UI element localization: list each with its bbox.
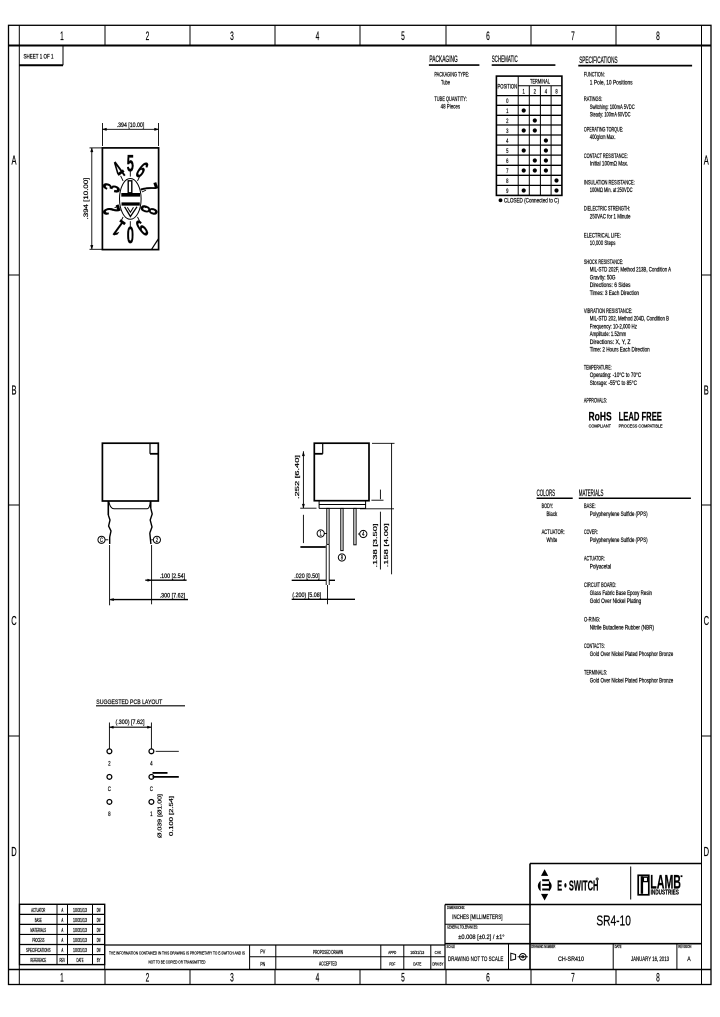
svg-text:1: 1 [60, 30, 64, 44]
svg-text:(.300) [7.62]: (.300) [7.62] [116, 720, 145, 726]
svg-text:2: 2 [108, 761, 110, 768]
svg-text:OPERATING TORQUE:: OPERATING TORQUE: [584, 127, 623, 134]
svg-text:PROCESS: PROCESS [32, 938, 44, 944]
svg-text:48 Pieces: 48 Pieces [441, 103, 461, 110]
svg-text:PACKAGING: PACKAGING [429, 54, 457, 64]
svg-text:BASE: BASE [35, 918, 42, 924]
svg-text:PDF: PDF [389, 962, 395, 967]
svg-text:TERMINALS:: TERMINALS: [584, 670, 607, 677]
svg-text:3: 3 [230, 30, 234, 44]
svg-text:FUNCTION:: FUNCTION: [584, 72, 605, 79]
svg-text:C: C [100, 537, 103, 544]
svg-text:1 Pole, 10 Positions: 1 Pole, 10 Positions [590, 79, 633, 86]
svg-text:8: 8 [555, 89, 557, 96]
svg-text:Time: 2 Hours Each Direction: Time: 2 Hours Each Direction [590, 347, 650, 354]
svg-text:INSULATION RESISTANCE:: INSULATION RESISTANCE: [584, 179, 635, 186]
svg-text:CH-SR410: CH-SR410 [558, 956, 584, 963]
svg-text:400g/cm Max.: 400g/cm Max. [590, 134, 616, 141]
svg-text:Glass Fabric Base Epoxy Resin: Glass Fabric Base Epoxy Resin [590, 590, 652, 597]
svg-text:MIL-STD 202F, Method 213B, Con: MIL-STD 202F, Method 213B, Condition A [590, 267, 672, 274]
svg-text:10/31/13: 10/31/13 [410, 950, 424, 955]
svg-text:2: 2 [156, 537, 158, 544]
svg-text:DATE: DATE [77, 958, 84, 964]
svg-text:7: 7 [571, 30, 575, 44]
svg-text:SHOCK RESISTANCE:: SHOCK RESISTANCE: [584, 259, 623, 266]
svg-text:B: B [704, 385, 709, 398]
svg-text:SPECIFICATIONS: SPECIFICATIONS [579, 55, 617, 65]
svg-text:4: 4 [545, 89, 547, 96]
svg-text:CIRCUIT BOARD:: CIRCUIT BOARD: [584, 582, 616, 589]
svg-text:4: 4 [506, 138, 508, 145]
svg-text:THE INFORMATION CONTAINED IN T: THE INFORMATION CONTAINED IN THIS DRAWIN… [109, 951, 245, 957]
svg-text:ACTUATOR: ACTUATOR [31, 908, 45, 914]
svg-text:COMPLIANT: COMPLIANT [589, 424, 612, 429]
svg-text:10,000 Steps: 10,000 Steps [590, 240, 616, 247]
svg-text:Steady: 100mA 60VDC: Steady: 100mA 60VDC [590, 112, 631, 119]
svg-text:9: 9 [506, 188, 508, 195]
svg-text:SHEET 1 OF 1: SHEET 1 OF 1 [24, 55, 54, 61]
svg-text:0.100 [2.54]: 0.100 [2.54] [169, 795, 175, 836]
svg-text:DW: DW [97, 928, 101, 934]
svg-text:CLOSED (Connected to C): CLOSED (Connected to C) [504, 199, 559, 205]
svg-text:REVISION: REVISION [678, 944, 691, 949]
svg-text:Gravity: 50G: Gravity: 50G [590, 274, 616, 281]
svg-text:2: 2 [146, 30, 150, 44]
svg-text:ACTUATOR:: ACTUATOR: [542, 529, 565, 536]
svg-text:APPROVALS:: APPROVALS: [584, 398, 607, 405]
svg-text:8: 8 [341, 555, 343, 562]
svg-text:D: D [704, 846, 709, 859]
svg-text:CHK: CHK [435, 950, 442, 955]
svg-text:PROCESS COMPATIBLE: PROCESS COMPATIBLE [619, 424, 663, 429]
svg-text:ACTUATOR:: ACTUATOR: [584, 556, 605, 563]
svg-text:White: White [547, 537, 558, 544]
svg-text:.394 [10.00]: .394 [10.00] [117, 123, 145, 129]
svg-text:3: 3 [506, 128, 508, 135]
svg-text:A: A [61, 928, 63, 934]
svg-text:4: 4 [316, 972, 320, 986]
svg-text:NOT TO BE COPIED OR TRANSMITTE: NOT TO BE COPIED OR TRANSMITTED [149, 960, 206, 966]
svg-text:INDUSTRIES: INDUSTRIES [651, 890, 679, 897]
svg-text:COLORS: COLORS [537, 488, 556, 498]
svg-text:.394 [10.00]: .394 [10.00] [84, 177, 90, 219]
svg-text:100MΩ Min. at 250VDC: 100MΩ Min. at 250VDC [590, 187, 633, 194]
svg-text:PACKAGING TYPE:: PACKAGING TYPE: [434, 71, 469, 78]
svg-text:Frequency: 10-2,000 Hz: Frequency: 10-2,000 Hz [590, 323, 637, 330]
svg-text:PN: PN [260, 962, 265, 968]
svg-text:D: D [11, 846, 16, 859]
svg-text:DW: DW [97, 918, 101, 924]
svg-text:TEMPERATURE:: TEMPERATURE: [584, 364, 612, 371]
svg-text:ACCEPTED: ACCEPTED [319, 962, 337, 968]
svg-text:Directions: 6 Sides: Directions: 6 Sides [590, 282, 631, 289]
svg-text:8: 8 [656, 972, 660, 986]
svg-text:1: 1 [523, 89, 525, 96]
svg-text:RATINGS:: RATINGS: [584, 96, 603, 103]
svg-text:250VAC for 1 Minute: 250VAC for 1 Minute [590, 213, 631, 220]
svg-text:REFERENCE: REFERENCE [30, 958, 46, 964]
svg-text:10/31/13: 10/31/13 [73, 948, 87, 954]
svg-text:Gold Over Nickel Plating: Gold Over Nickel Plating [590, 598, 642, 605]
svg-text:5: 5 [401, 972, 405, 986]
svg-text:.138 [3.50]: .138 [3.50] [373, 523, 379, 568]
svg-text:O-RING:: O-RING: [584, 617, 600, 624]
svg-text:PROPOSED DRAWN: PROPOSED DRAWN [313, 950, 343, 956]
svg-text:.252 [6.40]: .252 [6.40] [295, 454, 301, 499]
svg-text:.158 [4.00]: .158 [4.00] [384, 523, 390, 568]
svg-text:8: 8 [656, 30, 660, 44]
svg-text:8: 8 [506, 178, 508, 185]
svg-text:5: 5 [506, 148, 508, 155]
svg-text:TERMINAL: TERMINAL [530, 80, 550, 86]
svg-text:4: 4 [362, 531, 364, 538]
svg-text:APPD: APPD [388, 950, 396, 955]
svg-text:C: C [150, 786, 153, 793]
svg-text:A: A [61, 908, 63, 914]
svg-text:A: A [11, 155, 16, 168]
svg-text:INCHES [MILLIMETERS]: INCHES [MILLIMETERS] [452, 914, 503, 921]
svg-text:Storage: -55°C to 85°C: Storage: -55°C to 85°C [590, 379, 637, 387]
svg-text:1: 1 [320, 531, 322, 538]
svg-text:6: 6 [486, 30, 490, 44]
svg-text:A: A [704, 155, 709, 168]
svg-text:Polyphenylene Sulfide (PPS): Polyphenylene Sulfide (PPS) [590, 537, 648, 544]
svg-text:DW: DW [97, 908, 101, 914]
svg-text:Polyacetal: Polyacetal [590, 564, 611, 571]
svg-text:Tube: Tube [441, 79, 450, 86]
svg-text:DRN BY: DRN BY [432, 962, 443, 967]
svg-text:4: 4 [150, 761, 152, 768]
svg-text:10/31/13: 10/31/13 [73, 938, 87, 944]
svg-text:®: ® [596, 878, 599, 882]
svg-text:RoHS: RoHS [589, 409, 612, 423]
svg-text:LEAD FREE: LEAD FREE [619, 409, 662, 423]
svg-text:.300 [7.62]: .300 [7.62] [160, 593, 186, 599]
svg-text:6: 6 [486, 972, 490, 986]
svg-text:±0.008 [±0.2] / ±1°: ±0.008 [±0.2] / ±1° [458, 933, 505, 941]
svg-text:Operating: -10°C to 70°C: Operating: -10°C to 70°C [590, 371, 642, 379]
svg-text:SCALE: SCALE [447, 944, 456, 949]
svg-text:DATE: DATE [413, 962, 421, 967]
svg-text:BODY:: BODY: [542, 503, 554, 510]
svg-text:SUGGESTED PCB LAYOUT: SUGGESTED PCB LAYOUT [96, 699, 162, 706]
svg-text:CONTACTS:: CONTACTS: [584, 643, 605, 650]
svg-text:8: 8 [108, 811, 110, 818]
svg-text:10/31/13: 10/31/13 [73, 918, 87, 924]
svg-text:E • SWITCH: E • SWITCH [557, 876, 598, 894]
svg-text:Black: Black [547, 511, 558, 518]
svg-text:1: 1 [60, 972, 64, 986]
svg-text:SPECIFICATIONS: SPECIFICATIONS [26, 948, 51, 954]
svg-text:COVER:: COVER: [584, 529, 598, 536]
svg-text:C: C [11, 615, 17, 628]
svg-text:BY: BY [97, 958, 101, 964]
svg-text:POSITION: POSITION [498, 85, 518, 91]
svg-text:DW: DW [97, 948, 101, 954]
svg-text:DIMENSIONS:: DIMENSIONS: [447, 905, 465, 910]
svg-text:GENERAL TOLERANCES:: GENERAL TOLERANCES: [447, 925, 478, 930]
svg-text:7: 7 [506, 168, 508, 175]
svg-text:ELECTRICAL LIFE:: ELECTRICAL LIFE: [584, 232, 621, 239]
svg-text:Times: 3 Each Direction: Times: 3 Each Direction [590, 290, 640, 297]
svg-text:Gold Over Nickel Plated Phosph: Gold Over Nickel Plated Phosphor Bronze [590, 651, 674, 658]
svg-text:A: A [61, 938, 63, 944]
svg-text:10/31/13: 10/31/13 [73, 908, 87, 914]
svg-text:VIBRATION RESISTANCE:: VIBRATION RESISTANCE: [584, 308, 633, 315]
svg-text:1: 1 [506, 108, 508, 115]
svg-text:(.200) [5.08]: (.200) [5.08] [292, 593, 321, 599]
svg-text:C: C [704, 615, 710, 628]
svg-text:MATERIALS: MATERIALS [579, 488, 604, 498]
svg-text:DRAWING NUMBER: DRAWING NUMBER [531, 944, 555, 949]
svg-text:SR4-10: SR4-10 [596, 911, 631, 929]
svg-text:5: 5 [401, 30, 405, 44]
svg-text:SCHEMATIC: SCHEMATIC [492, 54, 518, 64]
svg-text:2: 2 [506, 118, 508, 125]
svg-text:Ø.039 [Ø1.00]: Ø.039 [Ø1.00] [158, 793, 164, 838]
svg-text:A: A [61, 918, 63, 924]
svg-text:.020 [0.50]: .020 [0.50] [294, 574, 320, 580]
svg-text:MIL-STD 202, Method 204D, Cond: MIL-STD 202, Method 204D, Condition B [590, 316, 669, 323]
svg-text:Directions: X, Y, Z: Directions: X, Y, Z [590, 339, 631, 346]
svg-text:BASE:: BASE: [584, 503, 596, 510]
svg-text:Initial 100mΩ Max.: Initial 100mΩ Max. [590, 161, 629, 168]
svg-text:Nitrile Butadiene Rubber (NBR): Nitrile Butadiene Rubber (NBR) [590, 625, 654, 632]
svg-text:3: 3 [230, 972, 234, 986]
svg-text:DIELECTRIC STRENGTH:: DIELECTRIC STRENGTH: [584, 206, 630, 213]
svg-text:2: 2 [534, 89, 536, 96]
svg-text:Amplitude: 1.52mm: Amplitude: 1.52mm [590, 331, 626, 338]
svg-text:CONTACT RESISTANCE:: CONTACT RESISTANCE: [584, 153, 628, 160]
svg-text:6: 6 [506, 158, 508, 165]
svg-text:.100 [2.54]: .100 [2.54] [160, 574, 186, 580]
svg-text:PV: PV [260, 950, 265, 956]
svg-text:1: 1 [150, 811, 152, 818]
svg-text:A: A [61, 948, 63, 954]
svg-text:Gold Over Nickel Plated Phosph: Gold Over Nickel Plated Phosphor Bronze [590, 678, 674, 685]
svg-text:DW: DW [97, 938, 101, 944]
svg-text:B: B [11, 385, 16, 398]
svg-text:10/31/13: 10/31/13 [73, 928, 87, 934]
svg-text:DRAWING NOT TO SCALE: DRAWING NOT TO SCALE [448, 956, 504, 963]
svg-text:JANUARY 16, 2013: JANUARY 16, 2013 [631, 956, 669, 963]
svg-text:REV: REV [59, 958, 65, 964]
svg-text:TUBE QUANTITY:: TUBE QUANTITY: [434, 96, 467, 103]
svg-text:Polyphenylene Sulfide (PPS): Polyphenylene Sulfide (PPS) [590, 511, 648, 518]
svg-text:0: 0 [506, 98, 508, 105]
svg-text:MATERIALS: MATERIALS [30, 928, 46, 934]
svg-text:A: A [687, 957, 690, 964]
svg-text:C: C [108, 786, 111, 793]
svg-text:Switching: 100mA 5VDC: Switching: 100mA 5VDC [590, 104, 635, 111]
svg-text:2: 2 [146, 972, 150, 986]
svg-text:7: 7 [571, 972, 575, 986]
svg-text:4: 4 [316, 30, 320, 44]
svg-text:DATE: DATE [615, 944, 622, 949]
